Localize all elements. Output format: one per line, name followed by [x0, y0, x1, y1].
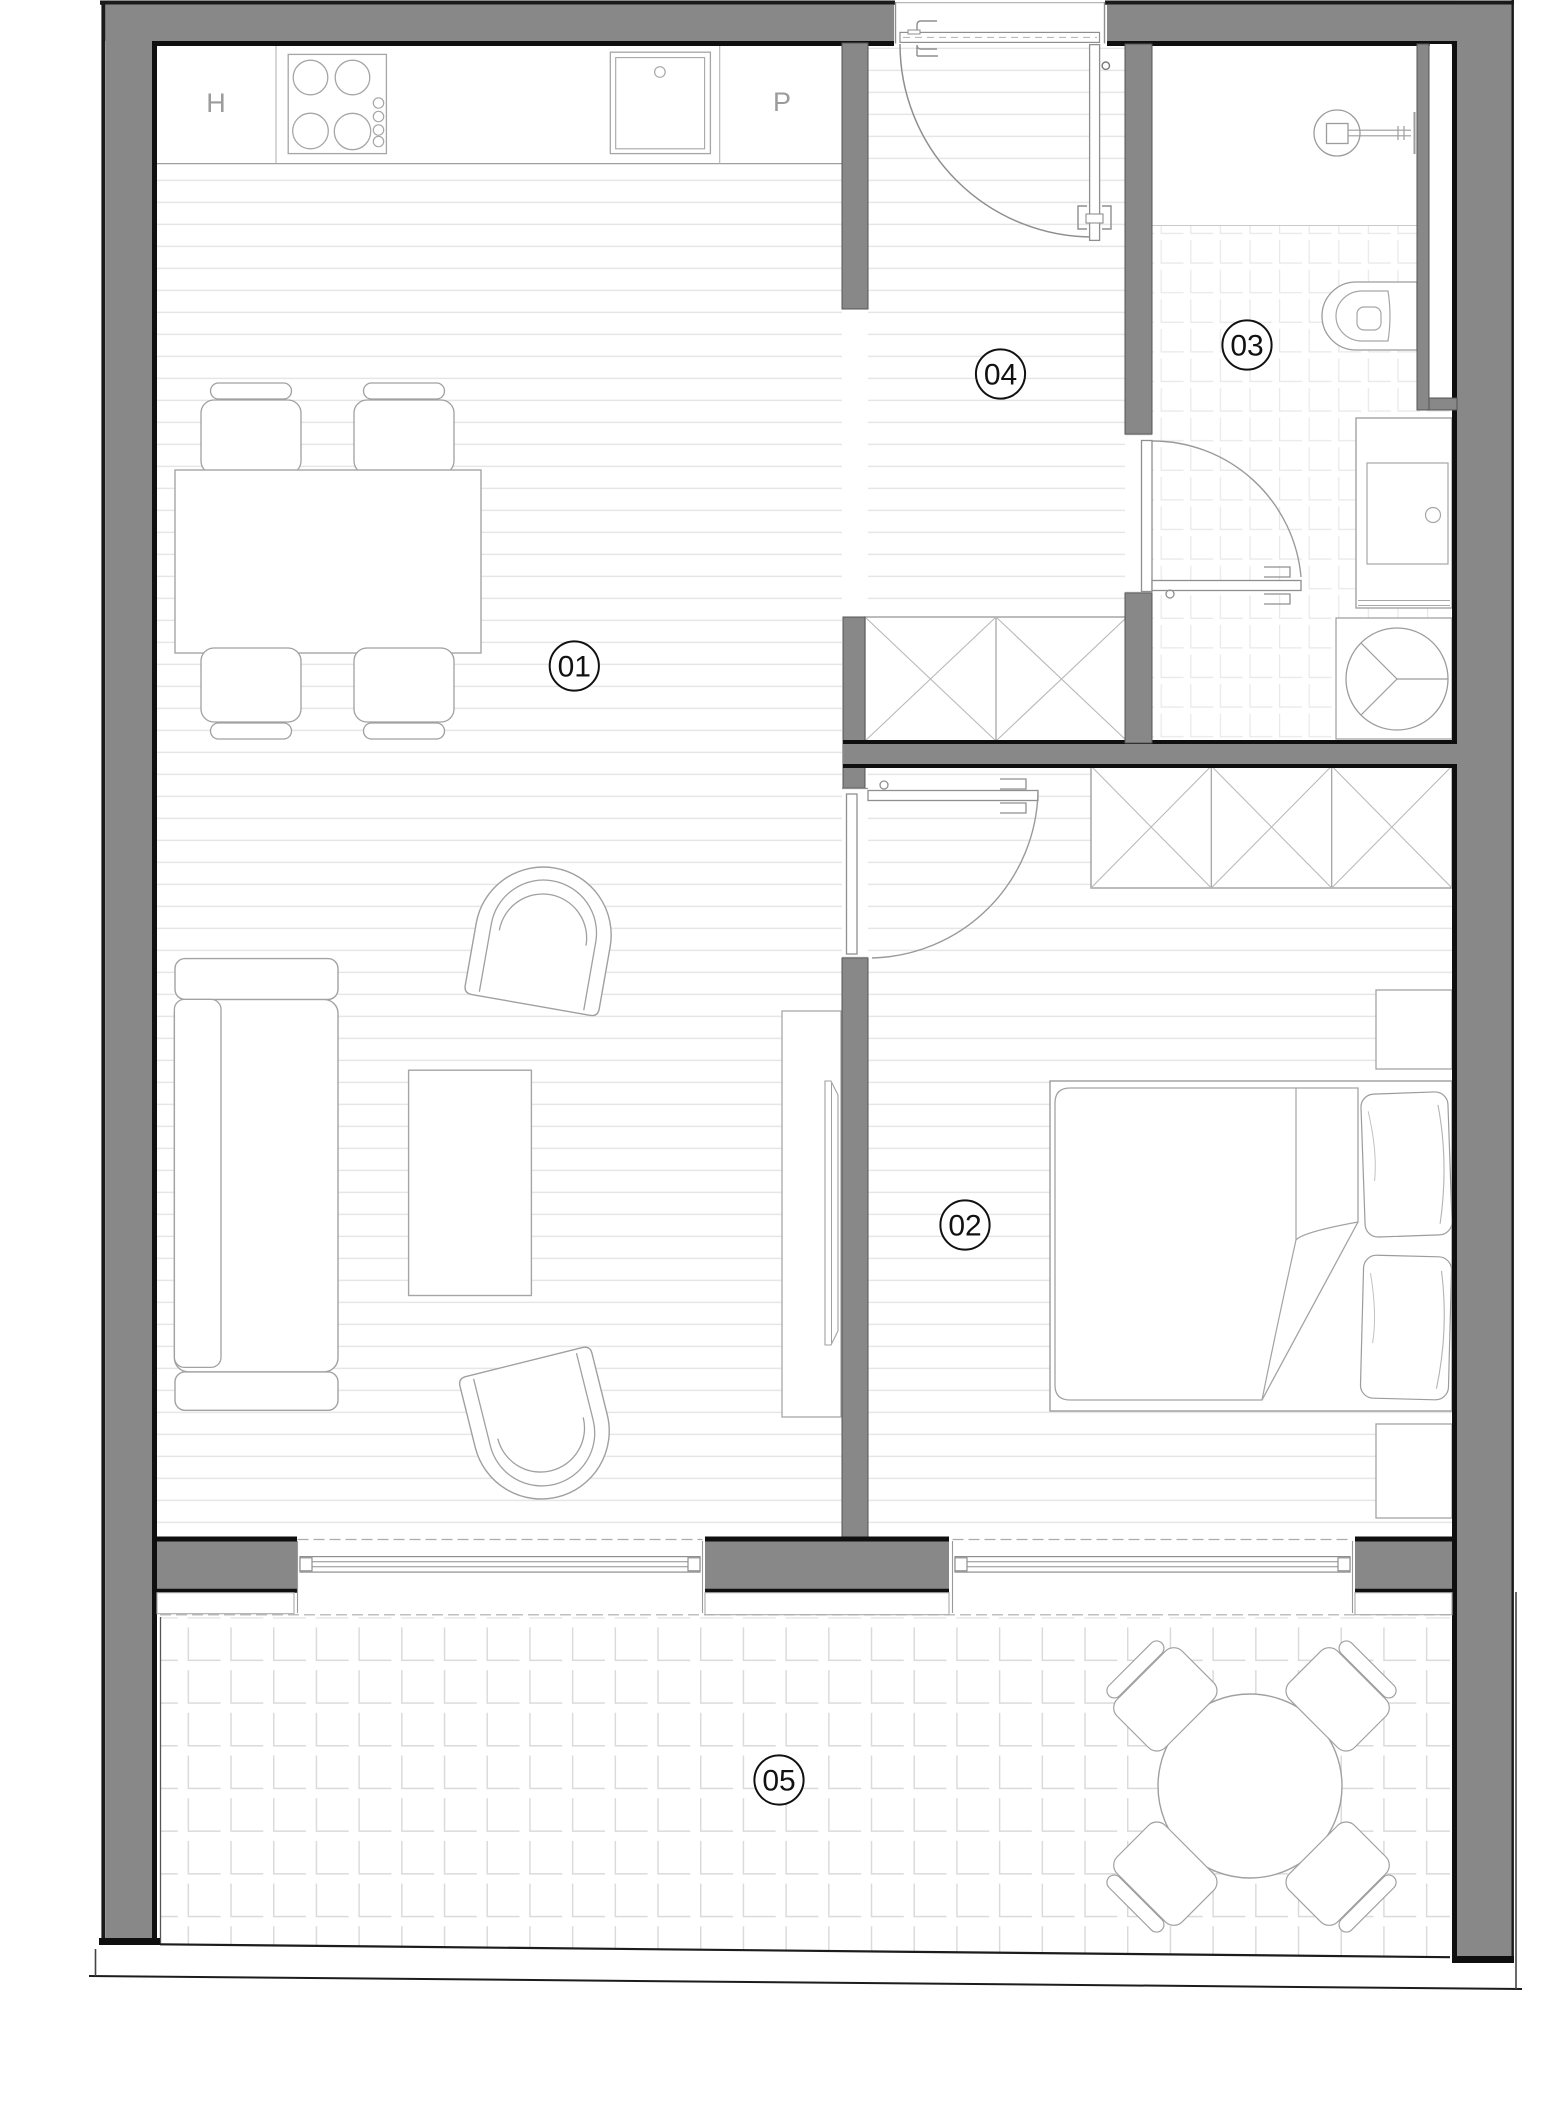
svg-text:03: 03	[1230, 330, 1263, 363]
svg-text:H: H	[206, 88, 226, 118]
svg-text:05: 05	[762, 1765, 795, 1798]
svg-text:P: P	[773, 87, 791, 117]
svg-text:02: 02	[948, 1210, 981, 1243]
svg-text:04: 04	[984, 359, 1017, 392]
svg-text:01: 01	[558, 651, 591, 684]
